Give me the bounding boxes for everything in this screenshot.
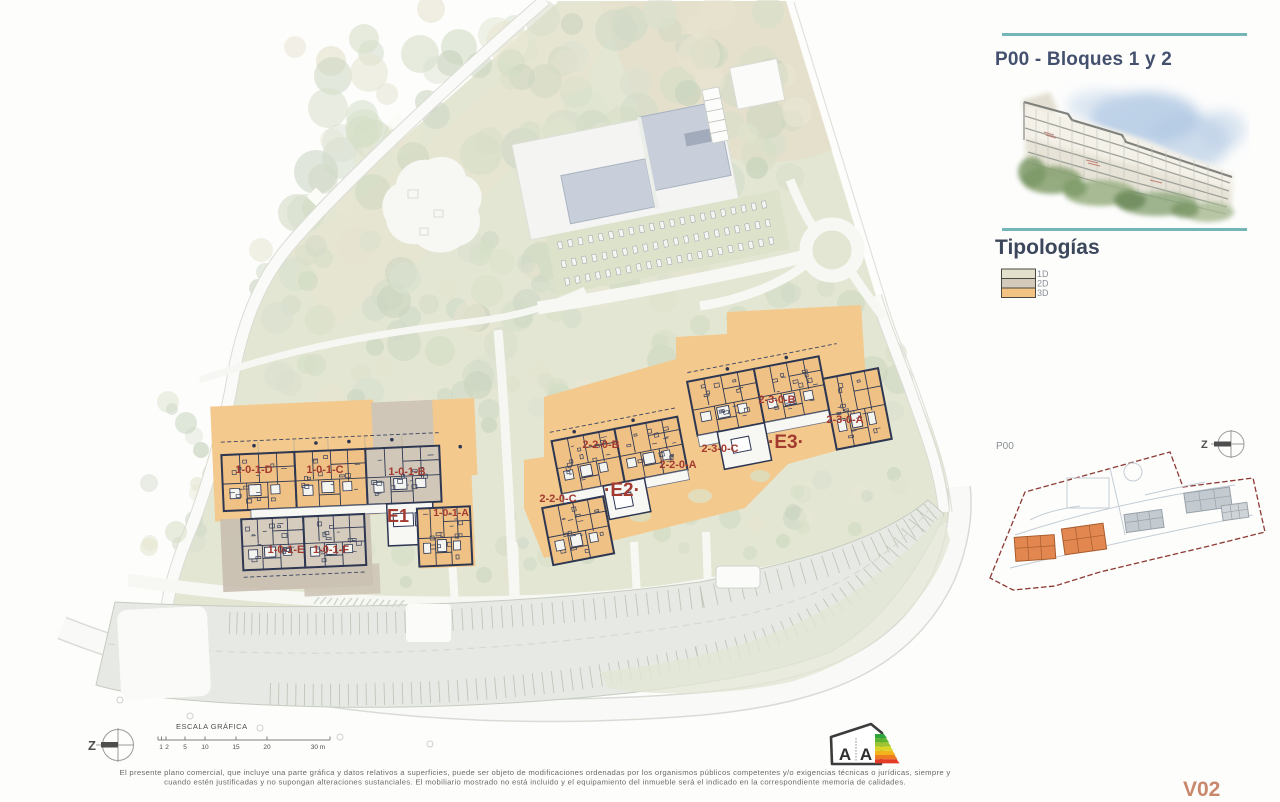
svg-text:20: 20 [263,744,271,751]
svg-text:1-0-1-D: 1-0-1-D [235,464,272,476]
svg-text:ESCALA GRÁFICA: ESCALA GRÁFICA [176,722,248,731]
svg-text:·E2·: ·E2· [604,480,640,501]
svg-text:1-0-1-F: 1-0-1-F [313,544,349,556]
svg-text:Z: Z [88,738,96,753]
svg-text:3D: 3D [1037,288,1049,298]
svg-text:1D: 1D [1037,269,1049,279]
svg-text:2-2-0-B: 2-2-0-B [582,439,619,451]
svg-text:El presente plano comercial, q: El presente plano comercial, que incluye… [120,768,951,777]
svg-text:·E3·: ·E3· [768,432,804,453]
svg-text:1-0-1-A: 1-0-1-A [433,507,469,519]
svg-text:2D: 2D [1037,279,1049,289]
svg-text:P00: P00 [996,441,1014,452]
svg-text:2-3-0-B: 2-3-0-B [758,394,795,406]
svg-text:2-2-0-A: 2-2-0-A [659,459,696,471]
svg-text:10: 10 [201,744,209,751]
svg-text:A: A [839,745,851,764]
svg-text:A: A [860,745,872,764]
svg-text:2-3-0-C: 2-3-0-C [701,443,738,455]
svg-text:Z: Z [1201,439,1208,451]
svg-text:1-0-1-B: 1-0-1-B [388,466,425,478]
svg-text:2-3-0-A: 2-3-0-A [826,414,863,426]
svg-text:30 m: 30 m [311,744,325,751]
svg-text:1: 1 [159,744,163,751]
svg-text:5: 5 [183,744,187,751]
svg-text:E1: E1 [387,506,409,526]
svg-text:1-0-1-C: 1-0-1-C [306,464,343,476]
svg-text:2: 2 [165,744,169,751]
svg-text:cuando estén justificadas y no: cuando estén justificadas y no supongan … [164,778,906,787]
svg-text:1-0-1-E: 1-0-1-E [268,544,305,556]
svg-text:2-2-0-C: 2-2-0-C [539,493,576,505]
svg-text:15: 15 [232,744,240,751]
